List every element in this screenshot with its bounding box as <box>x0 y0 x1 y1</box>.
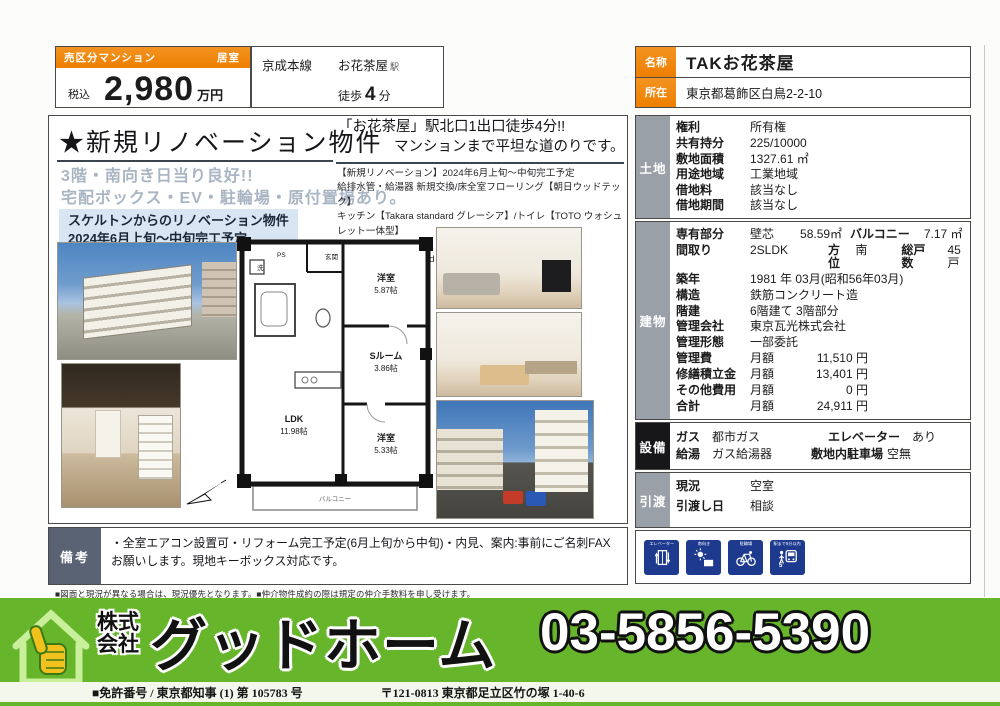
scan-artifact-line <box>984 45 985 597</box>
equipment-row: 給湯ガス給湯器敷地内駐車場空無 <box>676 448 970 461</box>
reno-line: 【新規リノベーション】2024年6月上旬～中旬完工予定 <box>337 167 629 181</box>
building-row: 築年1981 年 03月(昭和56年03月) <box>676 273 970 286</box>
equipment-row: ガス都市ガスエレベーターあり <box>676 431 970 444</box>
photo-dining-room <box>436 312 582 397</box>
company-logo-house-thumb-icon <box>6 600 96 688</box>
floorplan-room1-label: 洋室 <box>377 272 395 283</box>
photo-building-exterior <box>57 242 237 360</box>
floorplan-balcony-label: バルコニー <box>319 495 351 503</box>
category-badge: 売区分マンション <box>64 50 156 65</box>
equipment-section-label: 設備 <box>636 423 670 469</box>
name-label: 名称 <box>636 47 676 77</box>
bicycle-parking-feature-icon: 駐輪場 <box>728 540 763 575</box>
remarks-text: ・全室エアコン設置可・リフォーム完工予定(6月上旬から中旬)・内見、案内:事前に… <box>101 528 627 584</box>
land-row: 用途地域工業地域 <box>676 168 970 181</box>
feature-icons-box: エレベーター 南向き 駐輪場 <box>635 530 971 584</box>
title-rule <box>57 160 333 162</box>
walk-label: 徒歩 <box>338 89 362 103</box>
handover-section-label: 引渡 <box>636 473 670 527</box>
phone-number: 03-5856-5390 <box>540 602 870 663</box>
land-section: 土地 権利所有権 共有持分225/10000 敷地面積1327.61 ㎡ 用途地… <box>635 115 971 219</box>
station-suffix: 駅 <box>390 62 399 72</box>
building-row: 構造鉄筋コンクリート造 <box>676 289 970 302</box>
station-box: 京成本線 お花茶屋駅 徒歩4分 <box>251 46 444 108</box>
building-row: 管理費月額11,510 円 <box>676 352 970 365</box>
elevator-feature-icon: エレベーター <box>644 540 679 575</box>
floor-plan: バルコニー 洗 PS 玄関 洋 <box>237 226 433 516</box>
station-5min-feature-icon: 駅まで5分以内 5 <box>770 540 805 575</box>
property-address: 東京都葛飾区白鳥2-2-10 <box>676 78 822 108</box>
room-badge: 居室 <box>217 50 240 65</box>
photo-entrance-lobby <box>61 363 181 508</box>
elevator-icon <box>651 547 673 569</box>
north-arrow-icon <box>185 478 227 506</box>
property-name-box: 名称 TAKお花茶屋 所在 東京都葛飾区白鳥2-2-10 <box>635 46 971 108</box>
remarks-box: 備考 ・全室エアコン設置可・リフォーム完工予定(6月上旬から中旬)・内見、案内:… <box>48 527 628 585</box>
access-note: 「お花茶屋」駅北口1出口徒歩4分!! マンションまで平坦な道のりです。 <box>338 118 625 157</box>
floorplan-ps-label: PS <box>277 252 286 259</box>
building-row: その他費用月額0 円 <box>676 384 970 397</box>
photo-street-view <box>436 400 594 519</box>
main-title: ★新規リノベーション物件 <box>59 123 383 159</box>
address-label: 所在 <box>636 78 676 108</box>
land-section-label: 土地 <box>636 116 670 218</box>
building-section-label: 建物 <box>636 222 670 419</box>
access-line-2: マンションまで平坦な道のりです。 <box>338 138 625 158</box>
handover-row: 引渡し日相談 <box>676 500 970 513</box>
land-row: 借地期間該当なし <box>676 199 970 212</box>
tax-label: 税込 <box>68 86 90 102</box>
category-bar: 売区分マンション 居室 <box>56 47 250 68</box>
building-row: 合計月額24,911 円 <box>676 400 970 413</box>
floorplan-room2-label: 洋室 <box>377 432 395 443</box>
floorplan-ldk-size: 11.98帖 <box>280 426 307 436</box>
floorplan-room1-size: 5.87帖 <box>374 285 398 295</box>
equipment-section: 設備 ガス都市ガスエレベーターあり 給湯ガス給湯器敷地内駐車場空無 <box>635 422 971 470</box>
land-row: 権利所有権 <box>676 121 970 134</box>
building-row: 管理形態一部委託 <box>676 336 970 349</box>
price-unit: 万円 <box>197 85 223 104</box>
rail-line: 京成本線 <box>252 47 338 107</box>
company-name: グッドホーム <box>150 600 496 682</box>
walk-time: 徒歩4分 <box>338 84 399 106</box>
building-row: 階建6階建て 3階部分 <box>676 305 970 318</box>
license-number: ■免許番号 / 東京都知事 (1) 第 105783 号 <box>92 684 303 701</box>
floorplan-sroom-size: 3.86帖 <box>374 363 398 373</box>
building-row: 間取り2SLDK方位南総戸数45戸 <box>676 244 970 270</box>
land-row: 敷地面積1327.61 ㎡ <box>676 153 970 166</box>
floorplan-ldk-label: LDK <box>285 414 304 424</box>
license-strip: ■免許番号 / 東京都知事 (1) 第 105783 号 〒121-0813 東… <box>0 682 1000 702</box>
company-prefix-line2: 会社 <box>97 634 139 656</box>
svg-text:5: 5 <box>778 562 782 569</box>
blue-vehicle-shape <box>526 491 546 506</box>
address-row: 所在 東京都葛飾区白鳥2-2-10 <box>636 78 970 108</box>
train-walk-icon: 5 <box>777 547 799 569</box>
price-value: 2,980 <box>104 72 194 106</box>
walk-unit: 分 <box>379 89 391 103</box>
company-prefix: 株式 会社 <box>97 612 139 656</box>
station-column: お花茶屋駅 徒歩4分 <box>338 47 399 107</box>
floorplan-wash-label: 洗 <box>257 263 264 272</box>
station-name: お花茶屋 <box>338 59 388 73</box>
walk-minutes: 4 <box>365 84 376 105</box>
flyer-page: 売区分マンション 居室 税込 2,980 万円 京成本線 お花茶屋駅 徒歩4分 … <box>0 0 1000 706</box>
land-row: 借地料該当なし <box>676 184 970 197</box>
handover-row: 現況空室 <box>676 480 970 493</box>
property-name: TAKお花茶屋 <box>676 47 795 77</box>
reno-line: 給排水管・給湯器 新規交換/床全室フローリング【朝日ウッドテック】 <box>337 181 629 210</box>
building-section: 建物 専有部分壁芯58.59㎡バルコニー7.17 ㎡ 間取り2SLDK方位南総戸… <box>635 221 971 420</box>
sun-icon <box>693 547 715 569</box>
building-row: 専有部分壁芯58.59㎡バルコニー7.17 ㎡ <box>676 228 970 241</box>
name-row: 名称 TAKお花茶屋 <box>636 47 970 78</box>
building-row: 修繕積立金月額13,401 円 <box>676 368 970 381</box>
photo-living-room <box>436 227 582 309</box>
land-row: 共有持分225/10000 <box>676 137 970 150</box>
price-row: 税込 2,980 万円 <box>56 68 250 109</box>
south-facing-feature-icon: 南向き <box>686 540 721 575</box>
bicycle-icon <box>735 547 757 569</box>
access-rule <box>336 162 624 164</box>
company-address: 〒121-0813 東京都足立区竹の塚 1-40-6 <box>381 684 585 701</box>
building-row: 管理会社東京瓦光株式会社 <box>676 320 970 333</box>
price-box: 売区分マンション 居室 税込 2,980 万円 <box>55 46 251 108</box>
company-prefix-line1: 株式 <box>97 612 139 634</box>
floorplan-room2-size: 5.33帖 <box>374 445 398 455</box>
remarks-label: 備考 <box>49 528 101 584</box>
red-vehicle-shape <box>503 491 523 504</box>
floorplan-entrance-label: 玄関 <box>325 252 338 261</box>
footer-bottom-line <box>0 702 1000 706</box>
access-line-1: 「お花茶屋」駅北口1出口徒歩4分!! <box>338 118 625 138</box>
floorplan-sroom-label: Sルーム <box>370 351 403 361</box>
handover-section: 引渡 現況空室 引渡し日相談 <box>635 472 971 528</box>
main-content-box: ★新規リノベーション物件 「お花茶屋」駅北口1出口徒歩4分!! マンションまで平… <box>48 115 628 524</box>
